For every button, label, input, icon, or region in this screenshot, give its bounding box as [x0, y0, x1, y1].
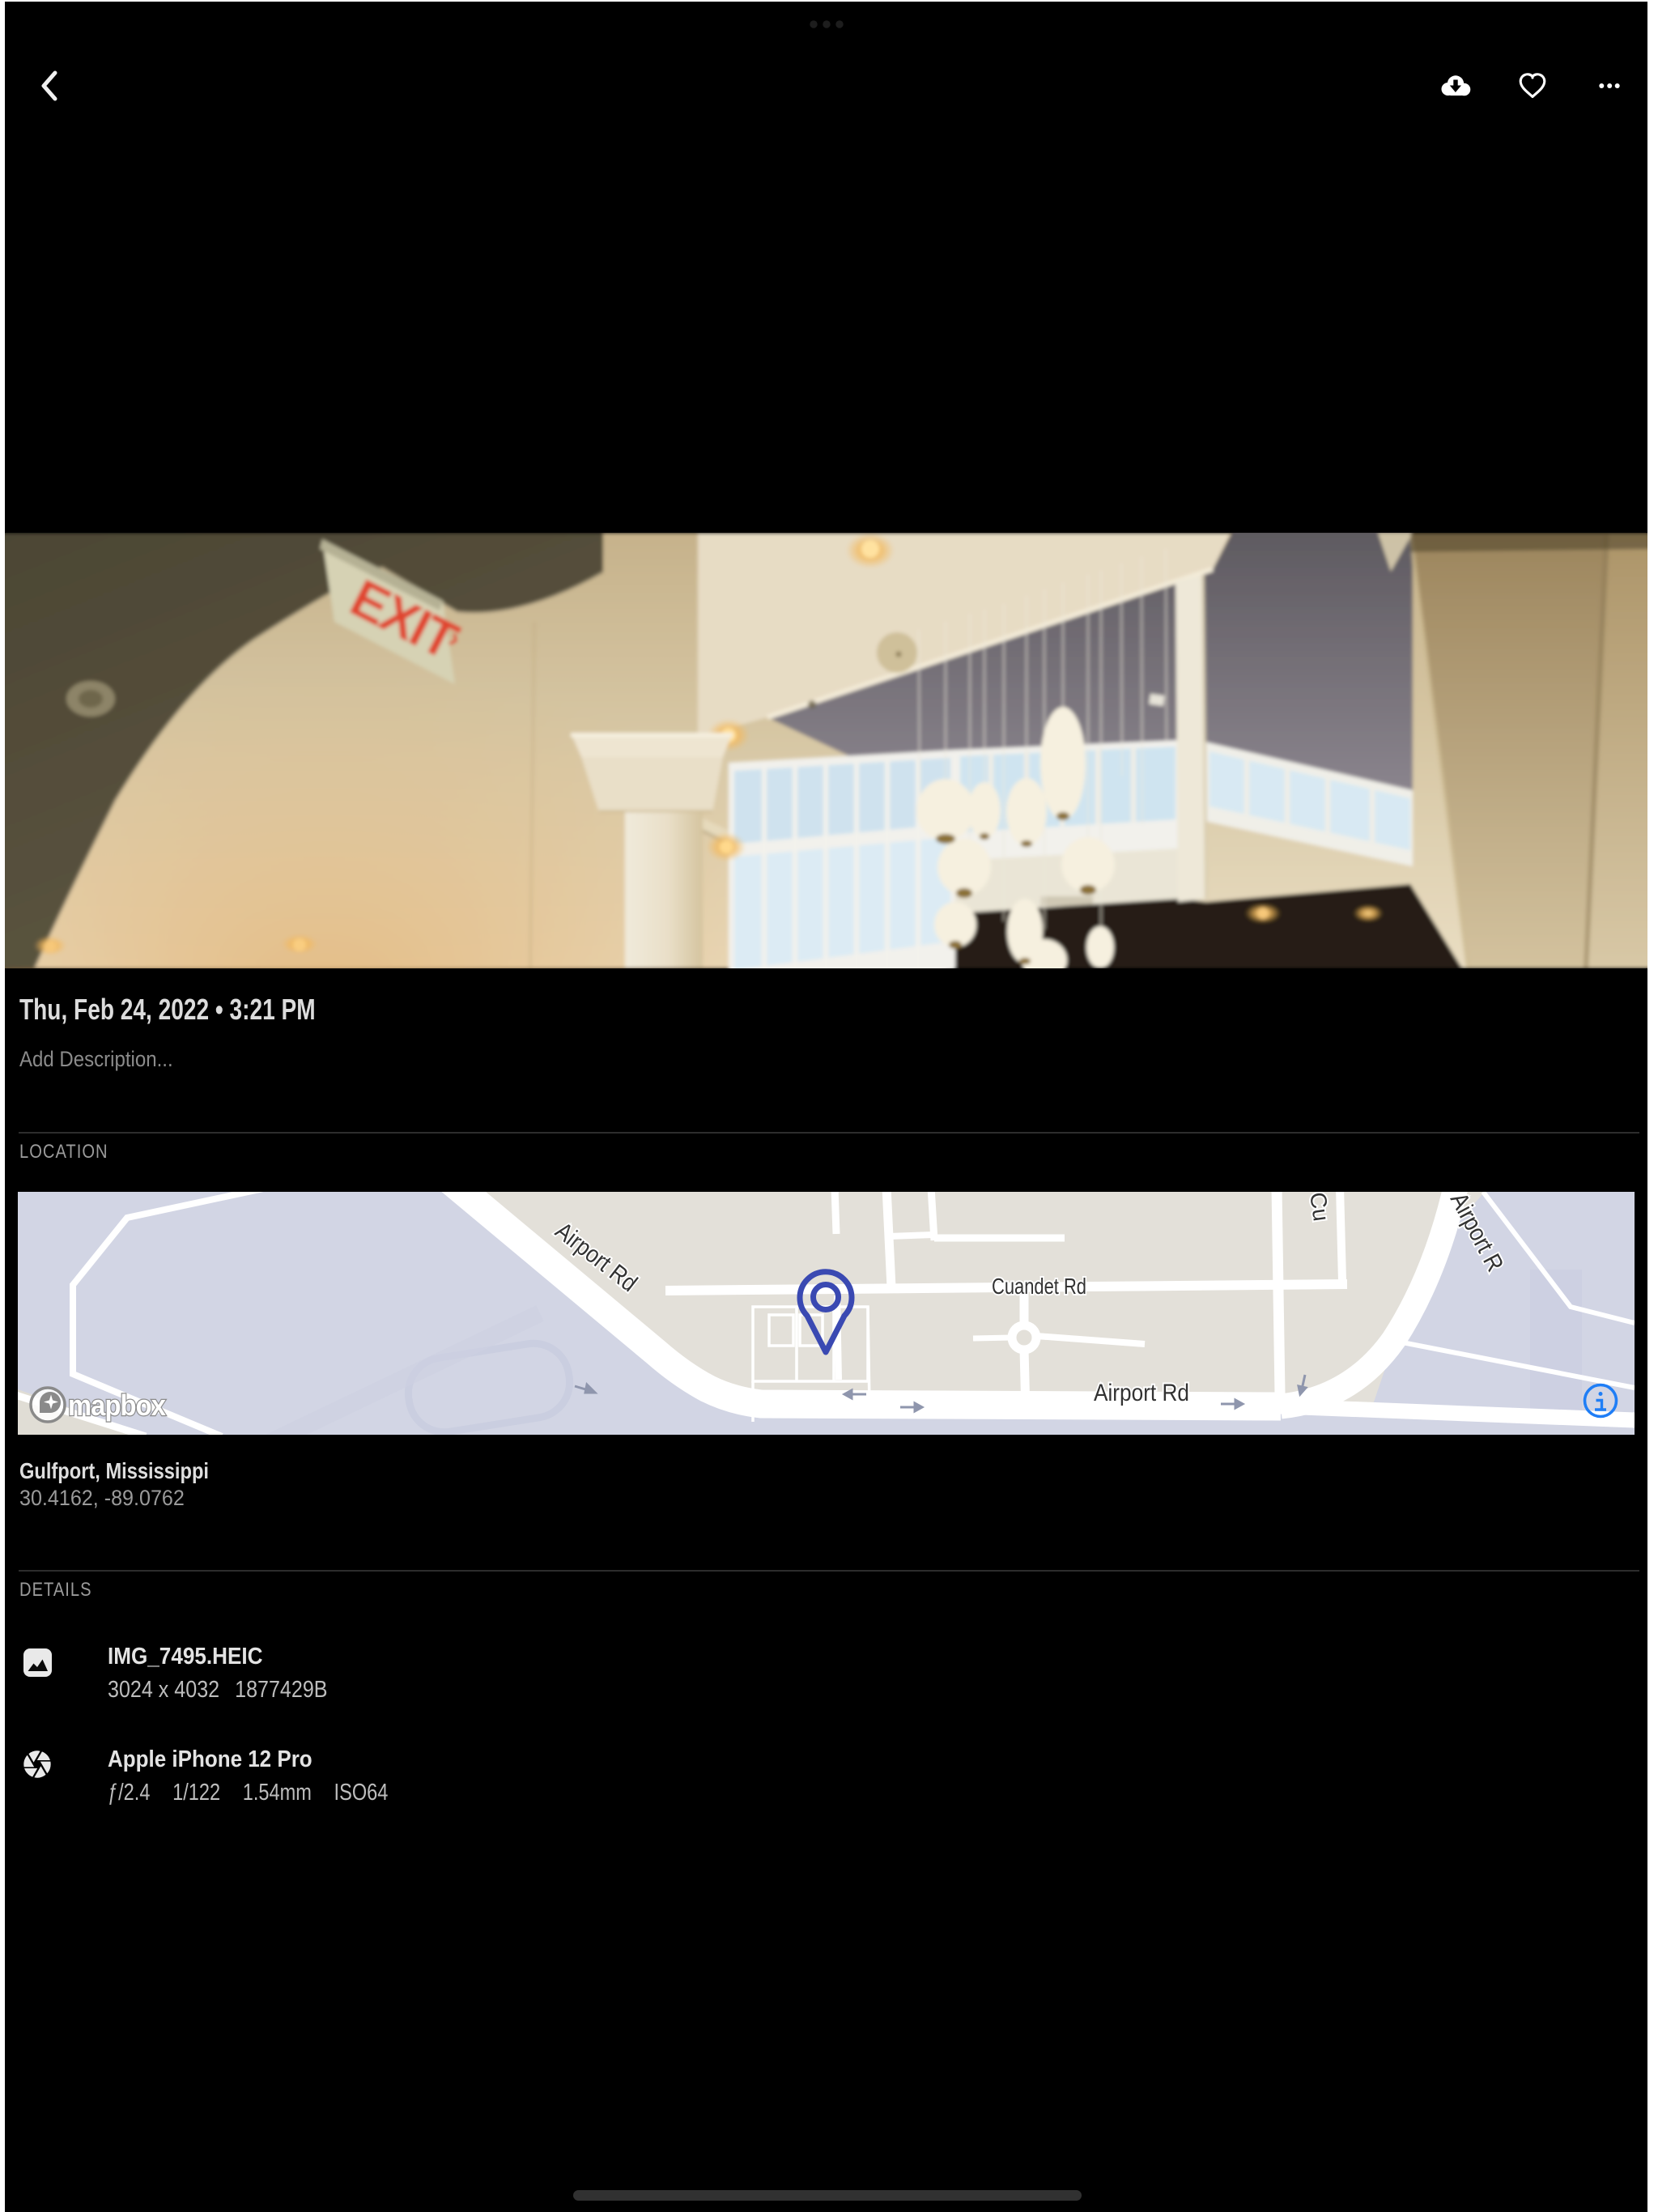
svg-text:Cuandet Rd: Cuandet Rd — [992, 1274, 1086, 1299]
svg-text:Cu: Cu — [1305, 1192, 1334, 1223]
svg-text:mapbox: mapbox — [68, 1389, 166, 1422]
svg-text:Airport Rd: Airport Rd — [1094, 1380, 1189, 1406]
